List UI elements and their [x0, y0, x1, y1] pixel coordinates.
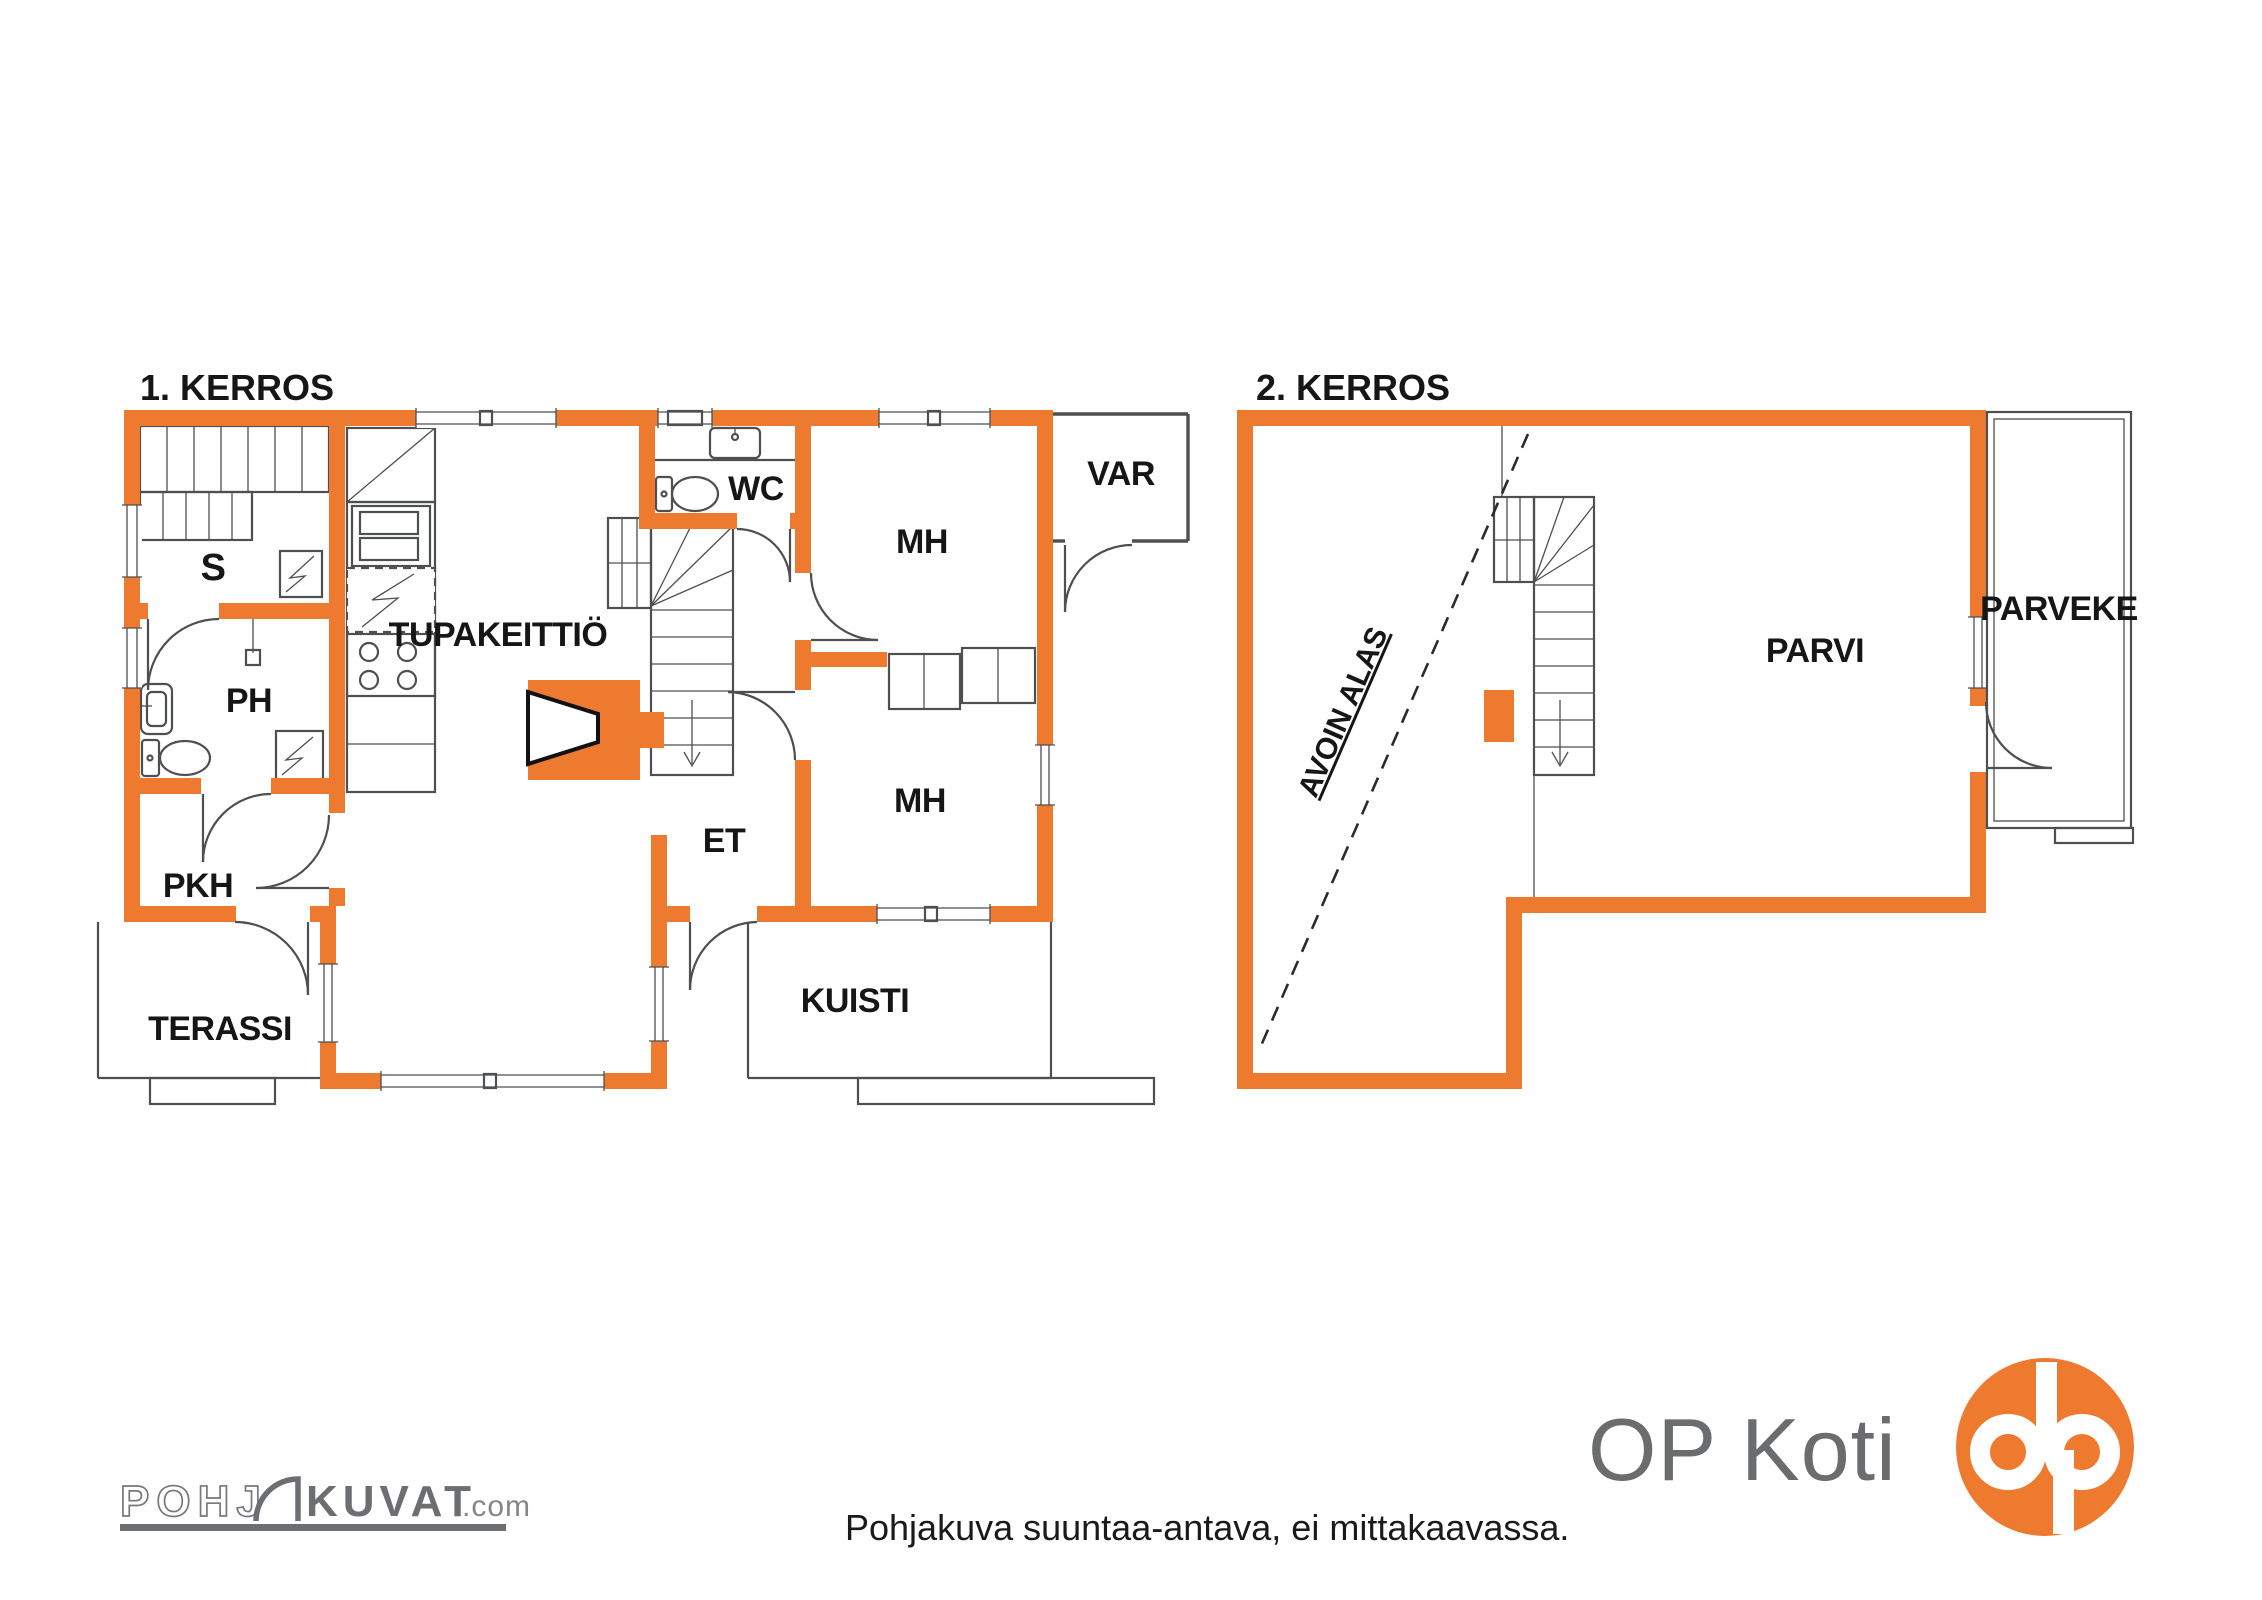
- room-label-mh-top: MH: [896, 523, 948, 561]
- pohjakuvat-logo: POHJ KUVAT .com: [120, 1477, 531, 1531]
- footer: Pohjakuva suuntaa-antava, ei mittakaavas…: [120, 1358, 2134, 1548]
- floor2-stairs: [1494, 426, 1594, 897]
- window: [381, 1071, 604, 1091]
- floor2-plan: 2. KERROS PARVI PARVEKE AVOIN ALAS: [1237, 367, 2138, 1089]
- room-label-avoin-alas: AVOIN ALAS: [1292, 622, 1395, 802]
- pohjakuvat-logo-pohj: POHJ: [120, 1477, 268, 1526]
- floor1-sauna-benches: [140, 426, 329, 540]
- room-label-mh-bottom: MH: [894, 782, 946, 820]
- room-label-var: VAR: [1087, 455, 1155, 493]
- wc-toilet-icon: [656, 477, 718, 511]
- window: [879, 408, 990, 428]
- op-logo-icon: [1956, 1358, 2134, 1536]
- room-label-et: ET: [703, 822, 746, 860]
- window: [122, 505, 142, 577]
- stairs-down-arrow-icon: [1552, 700, 1568, 766]
- wc-sink-icon: [710, 428, 760, 458]
- window: [649, 967, 669, 1041]
- room-label-parvi: PARVI: [1766, 632, 1864, 670]
- floor1-plan: 1. KERROS S TUPAKEITTIÖ WC MH MH PH PKH …: [98, 367, 1188, 1104]
- room-label-parveke: PARVEKE: [1980, 590, 2138, 628]
- window: [318, 964, 338, 1042]
- floor1-kitchen-counter: [347, 428, 435, 792]
- toilet-icon: [142, 740, 210, 776]
- op-koti-wordmark: OP Koti: [1588, 1400, 1897, 1499]
- room-label-ph: PH: [226, 682, 272, 720]
- window: [658, 408, 712, 428]
- sink-icon: [141, 684, 172, 734]
- water-heater-icon: [276, 731, 323, 780]
- pohjakuvat-logo-kuvat: KUVAT: [306, 1477, 476, 1526]
- stairs-down-arrow-icon: [684, 700, 700, 766]
- room-label-kuisti: KUISTI: [801, 982, 909, 1020]
- floor1-title: 1. KERROS: [140, 367, 334, 408]
- sauna-heater-icon: [280, 551, 322, 597]
- room-label-sauna: S: [201, 547, 226, 589]
- window: [1035, 745, 1055, 805]
- floor2-title: 2. KERROS: [1256, 367, 1450, 408]
- floorplan-page: 1. KERROS S TUPAKEITTIÖ WC MH MH PH PKH …: [0, 0, 2262, 1600]
- chimney: [1484, 690, 1514, 742]
- window: [416, 408, 556, 428]
- room-label-terassi: TERASSI: [148, 1010, 292, 1048]
- disclaimer-text: Pohjakuva suuntaa-antava, ei mittakaavas…: [845, 1507, 1569, 1548]
- room-label-tupakeittio: TUPAKEITTIÖ: [389, 616, 608, 654]
- room-label-wc: WC: [728, 470, 784, 508]
- floor2-walls: [1237, 410, 1986, 1089]
- logo-underline: [120, 1524, 506, 1531]
- fireplace: [528, 680, 664, 780]
- wardrobes: [889, 648, 1035, 709]
- balcony-door: [1986, 702, 2052, 768]
- window: [122, 628, 142, 688]
- window: [877, 904, 990, 924]
- room-label-pkh: PKH: [163, 867, 233, 905]
- pohjakuvat-logo-com: .com: [462, 1490, 531, 1523]
